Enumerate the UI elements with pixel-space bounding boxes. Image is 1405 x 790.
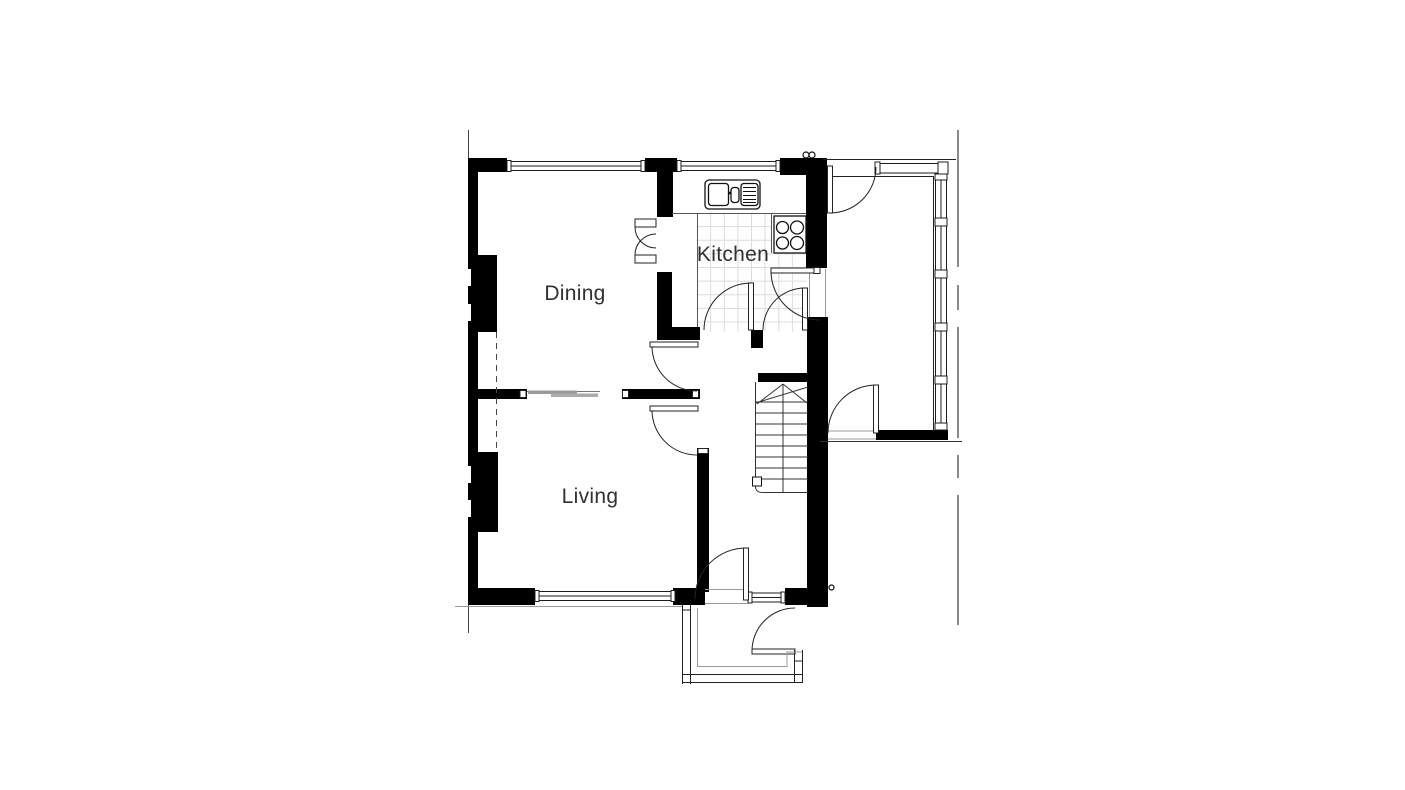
door-living-hall xyxy=(650,406,698,455)
stairs-winders xyxy=(756,384,809,404)
doors xyxy=(635,166,879,654)
wall-stairs-head xyxy=(758,373,810,382)
rwp-symbol-icon xyxy=(829,585,834,590)
window-garden-room-east xyxy=(935,174,947,430)
wall-living-east xyxy=(697,448,709,592)
garden-room-outline xyxy=(823,160,956,431)
porch-inner-face xyxy=(698,608,803,667)
chimney-breast-dining xyxy=(468,255,497,332)
door-porch xyxy=(752,608,795,654)
walls xyxy=(468,158,948,607)
sliding-door-dining-living xyxy=(527,391,600,398)
wall-east-upper xyxy=(806,158,827,268)
wall-kitchen-west-lower xyxy=(657,272,672,332)
window-hall-south xyxy=(748,592,785,603)
window-kitchen-north xyxy=(677,161,780,172)
floor-plan-drawing: Dining Kitchen Living xyxy=(0,0,1405,790)
door-dining-kitchen-bifold xyxy=(635,219,656,263)
window-living-south xyxy=(535,591,675,602)
kitchen-sink-icon xyxy=(705,180,760,209)
door-thresholds xyxy=(705,269,876,604)
wall-bottom-right-corner xyxy=(785,588,828,605)
stairs-newel-post xyxy=(753,477,762,486)
door-kitchen-hall xyxy=(704,283,754,330)
room-label-kitchen: Kitchen xyxy=(697,243,769,266)
door-garden-room-south xyxy=(828,385,879,433)
sliding-door-track xyxy=(528,391,577,395)
wall-divider-west xyxy=(468,389,527,399)
hob-icon xyxy=(774,216,806,253)
room-labels: Dining Kitchen Living xyxy=(544,243,769,508)
wall-kitchen-west-upper xyxy=(657,158,673,217)
door-dining-hall xyxy=(650,342,698,391)
wall-garden-room-south xyxy=(876,430,948,440)
wall-east-lower xyxy=(807,317,828,607)
wall-hall-stub xyxy=(751,330,763,348)
window-garden-room-north xyxy=(875,162,948,174)
door-garden-room-north xyxy=(828,166,877,213)
room-label-living: Living xyxy=(562,485,619,508)
wall-end-caps xyxy=(520,391,708,454)
wall-bottom-left-corner xyxy=(468,588,535,605)
staircase xyxy=(753,382,809,493)
porch xyxy=(682,605,803,684)
wall-kitchen-south xyxy=(657,327,700,340)
svp-symbol-icon xyxy=(803,152,809,158)
chimney-breast-living xyxy=(468,452,498,532)
room-label-dining: Dining xyxy=(544,282,605,305)
window-dining-north xyxy=(507,161,645,172)
floor-plan-canvas: Dining Kitchen Living xyxy=(0,0,1405,790)
sliding-door-panel xyxy=(551,394,598,398)
stairs-treads xyxy=(756,402,809,479)
svp-symbol-icon xyxy=(809,152,815,158)
wall-bottom-pier xyxy=(673,588,705,605)
wall-left xyxy=(468,158,478,605)
